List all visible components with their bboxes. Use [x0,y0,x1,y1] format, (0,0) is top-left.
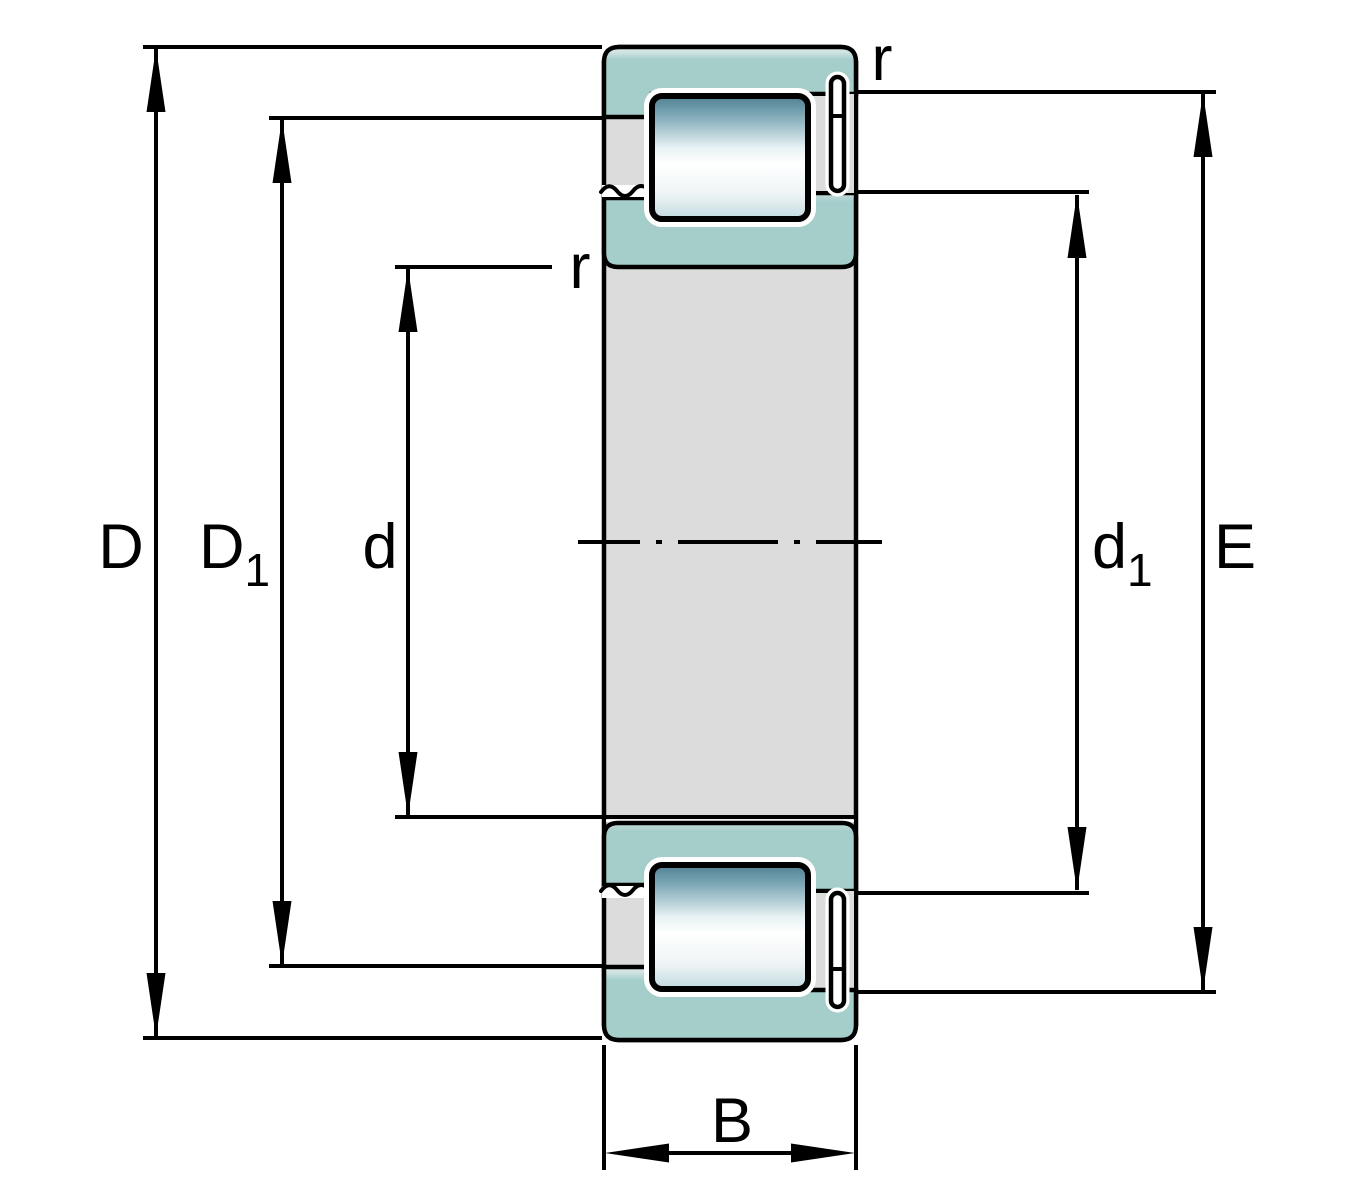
dim-D-arrow-top [147,48,166,112]
dim-d1-arrow-top [1068,194,1087,258]
dim-d-arrow-bottom [399,752,418,816]
dim-B-arrow-right [791,1144,855,1163]
dim-d-arrow-top [399,268,418,332]
label-D: D [98,512,144,582]
dim-d1-arrow-bottom [1068,827,1087,891]
label-d1: d1 [1092,512,1153,596]
label-r-left: r [570,232,591,302]
technical-drawing: D D1 d d1 E B r r [0,0,1350,1200]
label-d: d [362,512,397,582]
label-E: E [1214,512,1256,582]
dim-E-arrow-bottom [1194,927,1213,991]
label-r-top: r [872,24,893,94]
dim-E [858,92,1216,992]
bearing-diagram-canvas: D D1 d d1 E B r r [0,0,1350,1200]
dim-B-arrow-left [605,1144,669,1163]
dim-D1-arrow-bottom [273,901,292,965]
roller-bottom [652,865,808,989]
label-D1: D1 [199,512,270,596]
dim-d1 [858,192,1089,893]
label-B: B [711,1086,753,1156]
roller-top [652,96,808,219]
guide-rib-bottom [831,893,844,1007]
dim-D1 [269,118,602,966]
dim-D1-arrow-top [273,119,292,183]
dim-D-arrow-bottom [147,973,166,1037]
dim-E-arrow-top [1194,93,1213,157]
guide-rib-top [831,77,844,191]
dim-d [395,267,602,817]
